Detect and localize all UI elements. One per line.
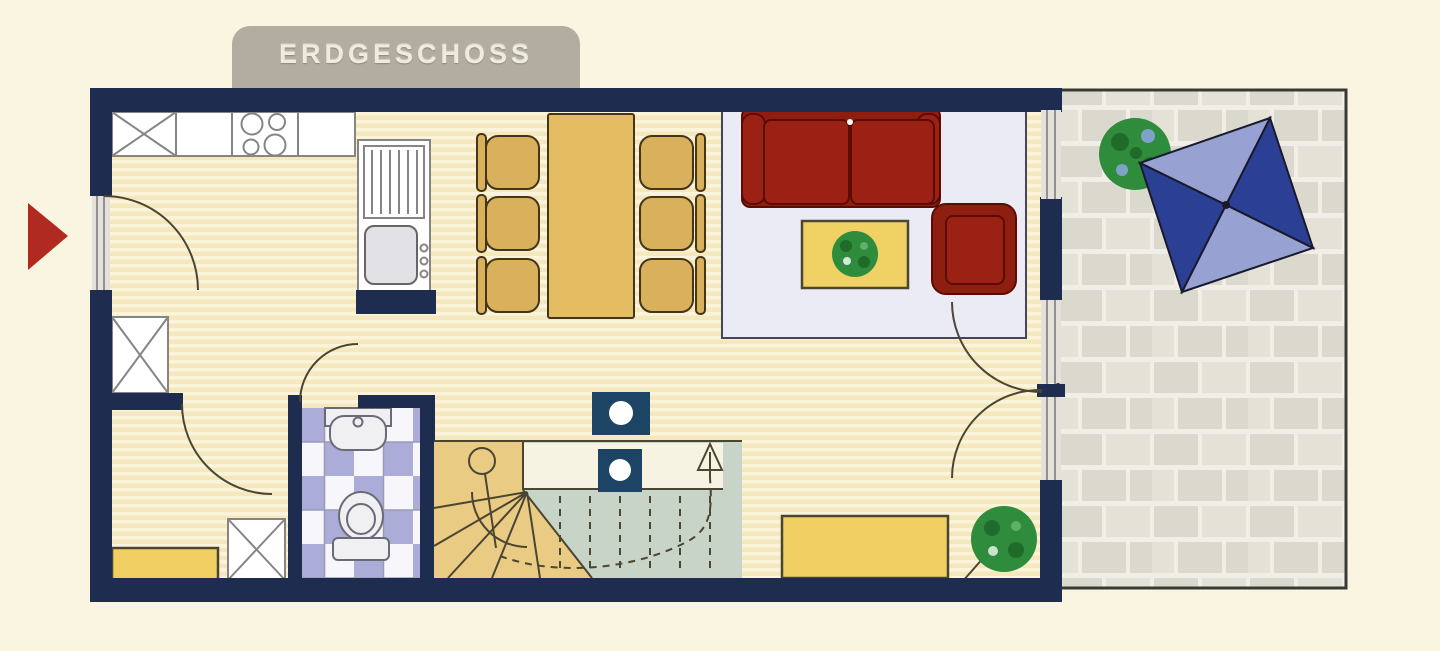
dining-chair — [477, 257, 539, 314]
wall-left-upper — [90, 88, 112, 196]
armchair — [932, 204, 1016, 294]
wall-right-lower — [1040, 480, 1062, 602]
dining-chair — [640, 195, 705, 252]
wall-left-lower — [90, 290, 112, 602]
window-living-right — [1041, 110, 1061, 199]
coffee-table — [802, 221, 908, 288]
sideboard — [782, 516, 948, 578]
terrace-door-glass-lower — [1041, 397, 1061, 480]
kitchen-sink-unit — [356, 140, 436, 314]
dining-chair — [640, 257, 705, 314]
appliance-symbol — [228, 519, 285, 580]
tall-cabinet-symbol — [112, 317, 168, 393]
sofa — [742, 108, 940, 207]
dining-chair — [640, 134, 705, 191]
bathroom-wall-left — [288, 395, 302, 578]
dining-table — [548, 114, 634, 318]
wall-bottom — [90, 578, 1062, 602]
hall-wall — [90, 393, 183, 410]
hall-bench — [112, 548, 218, 580]
floorplan — [0, 0, 1440, 651]
terrace — [1058, 90, 1346, 588]
terrace-door-glass-upper — [1041, 300, 1061, 383]
dining-chair — [477, 134, 539, 191]
kitchen-counter — [112, 112, 355, 156]
page-background: ERDGESCHOSS — [0, 0, 1440, 651]
wall-right-mid — [1040, 197, 1062, 300]
column — [592, 392, 650, 435]
dining-area — [477, 114, 705, 318]
column — [598, 449, 642, 492]
staircase — [434, 440, 742, 578]
bathroom-wall-right — [420, 395, 435, 578]
coffee-table-plant — [832, 231, 878, 277]
dining-chair — [477, 195, 539, 252]
entrance-arrow-icon — [28, 203, 68, 270]
washbasin — [325, 408, 391, 450]
wall-top — [90, 88, 1062, 112]
